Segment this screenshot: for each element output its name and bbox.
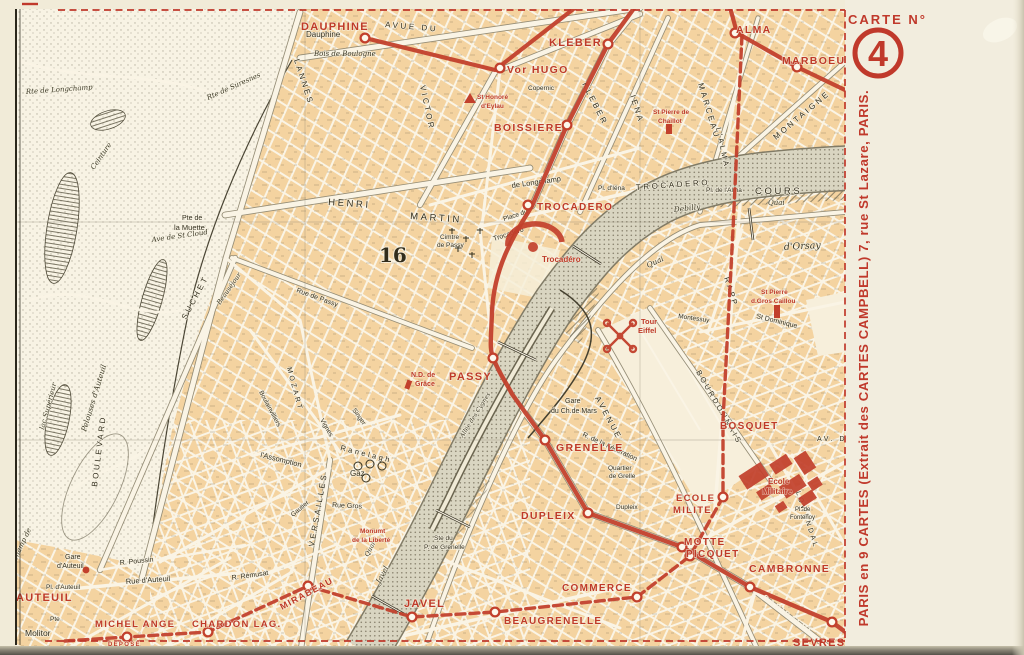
map-label: MICHEL ANGE <box>95 619 175 630</box>
map-label: du Ch.de Mars <box>551 408 597 415</box>
map-label: MOTTE <box>684 537 726 548</box>
map-label: d'Eylau <box>481 103 504 110</box>
carte-number-label: CARTE N° <box>848 12 927 27</box>
map-label: Pl. d'Auteuil <box>46 584 81 591</box>
map-label: ECOLE <box>676 493 715 504</box>
publisher-credit: PARIS en 9 CARTES (Extrait des CARTES CA… <box>856 90 871 627</box>
map-label: Quartier <box>608 465 632 472</box>
metro-station-circle <box>719 493 728 502</box>
map-label: BOSQUET <box>720 421 779 432</box>
map-label: Trocadéro <box>542 255 581 264</box>
map-label: Pl. de <box>795 507 811 513</box>
gros-caillou-church <box>774 305 780 318</box>
map-label: Pl. de l'Alma <box>706 187 742 194</box>
map-label: Pte <box>50 616 60 623</box>
map-label: JAVEL <box>404 598 445 610</box>
map-label: Monumt <box>360 528 386 535</box>
map-label: P. de Grenelle <box>424 544 465 551</box>
map-label: St Pierre de <box>653 109 690 116</box>
map-label: Militaire <box>762 487 793 496</box>
map-label: Quai <box>768 199 785 207</box>
postcard-right-margin <box>845 0 1024 655</box>
map-label: DUPLEIX <box>521 510 576 522</box>
paris-map-postcard: DauphineBois de BoulogneAVUE DULANNESVIC… <box>0 0 1024 655</box>
map-label: DAUPHINE <box>301 21 369 33</box>
map-label: ALMA <box>736 24 772 36</box>
map-label: de la Liberté <box>352 537 391 544</box>
map-label: St Pierre <box>761 289 788 296</box>
metro-station-circle <box>489 354 498 363</box>
map-label: PICQUET <box>686 549 740 560</box>
map-label: Ste du <box>434 535 453 542</box>
bottom-paper-edge <box>0 646 1024 655</box>
map-label: COURS <box>755 186 802 197</box>
map-label: Tour <box>641 317 657 326</box>
metro-station-circle <box>633 593 642 602</box>
map-label: BEAUGRENELLE <box>504 616 602 627</box>
map-label: St Honoré <box>477 94 508 101</box>
postcard-map-page: DauphineBois de BoulogneAVUE DULANNESVIC… <box>0 0 1024 655</box>
map-label: d'Orsay <box>784 240 822 253</box>
metro-station-circle <box>496 64 505 73</box>
map-label: d'Auteuil <box>57 563 84 570</box>
metro-station-circle <box>746 583 755 592</box>
map-label: KLEBER <box>549 37 602 49</box>
map-label: Copernic <box>528 85 555 92</box>
metro-station-circle <box>83 567 90 574</box>
map-label: 16 <box>379 243 407 267</box>
metro-station-circle <box>123 633 132 642</box>
map-label: MARBOEUF <box>782 55 853 67</box>
st-pierre-de-chaillot-church <box>666 124 672 134</box>
metro-station-circle <box>361 34 370 43</box>
map-label: de Grelle <box>609 473 636 480</box>
map-label: COMMERCE <box>562 583 632 594</box>
map-label: Cimtre <box>440 234 460 241</box>
map-label: GRENELLE <box>556 442 624 454</box>
map-label: Gare <box>565 398 581 405</box>
metro-station-circle <box>563 121 572 130</box>
map-area: DauphineBois de BoulogneAVUE DULANNESVIC… <box>11 0 855 655</box>
map-label: d.Gros Caillou <box>751 298 795 305</box>
map-label: Gare <box>65 554 81 561</box>
metro-station-circle <box>828 618 837 627</box>
map-label: Vor HUGO <box>507 64 569 76</box>
map-label: Molitor <box>25 628 51 638</box>
map-label: Grâce <box>415 381 435 388</box>
map-label: Chaillot <box>658 118 683 125</box>
map-label: PASSY <box>449 371 492 383</box>
map-label: Pte de <box>182 215 202 222</box>
map-label: BOISSIERE <box>494 122 563 134</box>
metro-station-circle <box>604 40 613 49</box>
map-label: Bois de Boulogne <box>313 50 376 58</box>
map-label: Ecole <box>768 477 790 486</box>
map-label: Pl. d'Iéna <box>598 185 625 192</box>
map-label: CAMBRONNE <box>749 563 830 575</box>
map-label: CHARDON LAG. <box>192 619 282 630</box>
metro-station-circle <box>408 613 417 622</box>
metro-station-circle <box>524 201 533 210</box>
metro-station-circle <box>491 608 500 617</box>
map-label: TROCADERO <box>537 202 613 213</box>
map-label: AUTEUIL <box>16 592 73 604</box>
right-paper-edge <box>1012 0 1024 655</box>
map-label: N.D. de <box>411 372 435 379</box>
map-label: Fontenoy <box>790 515 815 521</box>
metro-station-circle <box>541 436 550 445</box>
carte-number-value: 4 <box>868 33 888 74</box>
map-label: Eiffel <box>638 326 656 335</box>
metro-station-circle <box>584 509 593 518</box>
map-label: Dupleix <box>616 504 638 511</box>
map-label: MILITE <box>673 505 712 516</box>
